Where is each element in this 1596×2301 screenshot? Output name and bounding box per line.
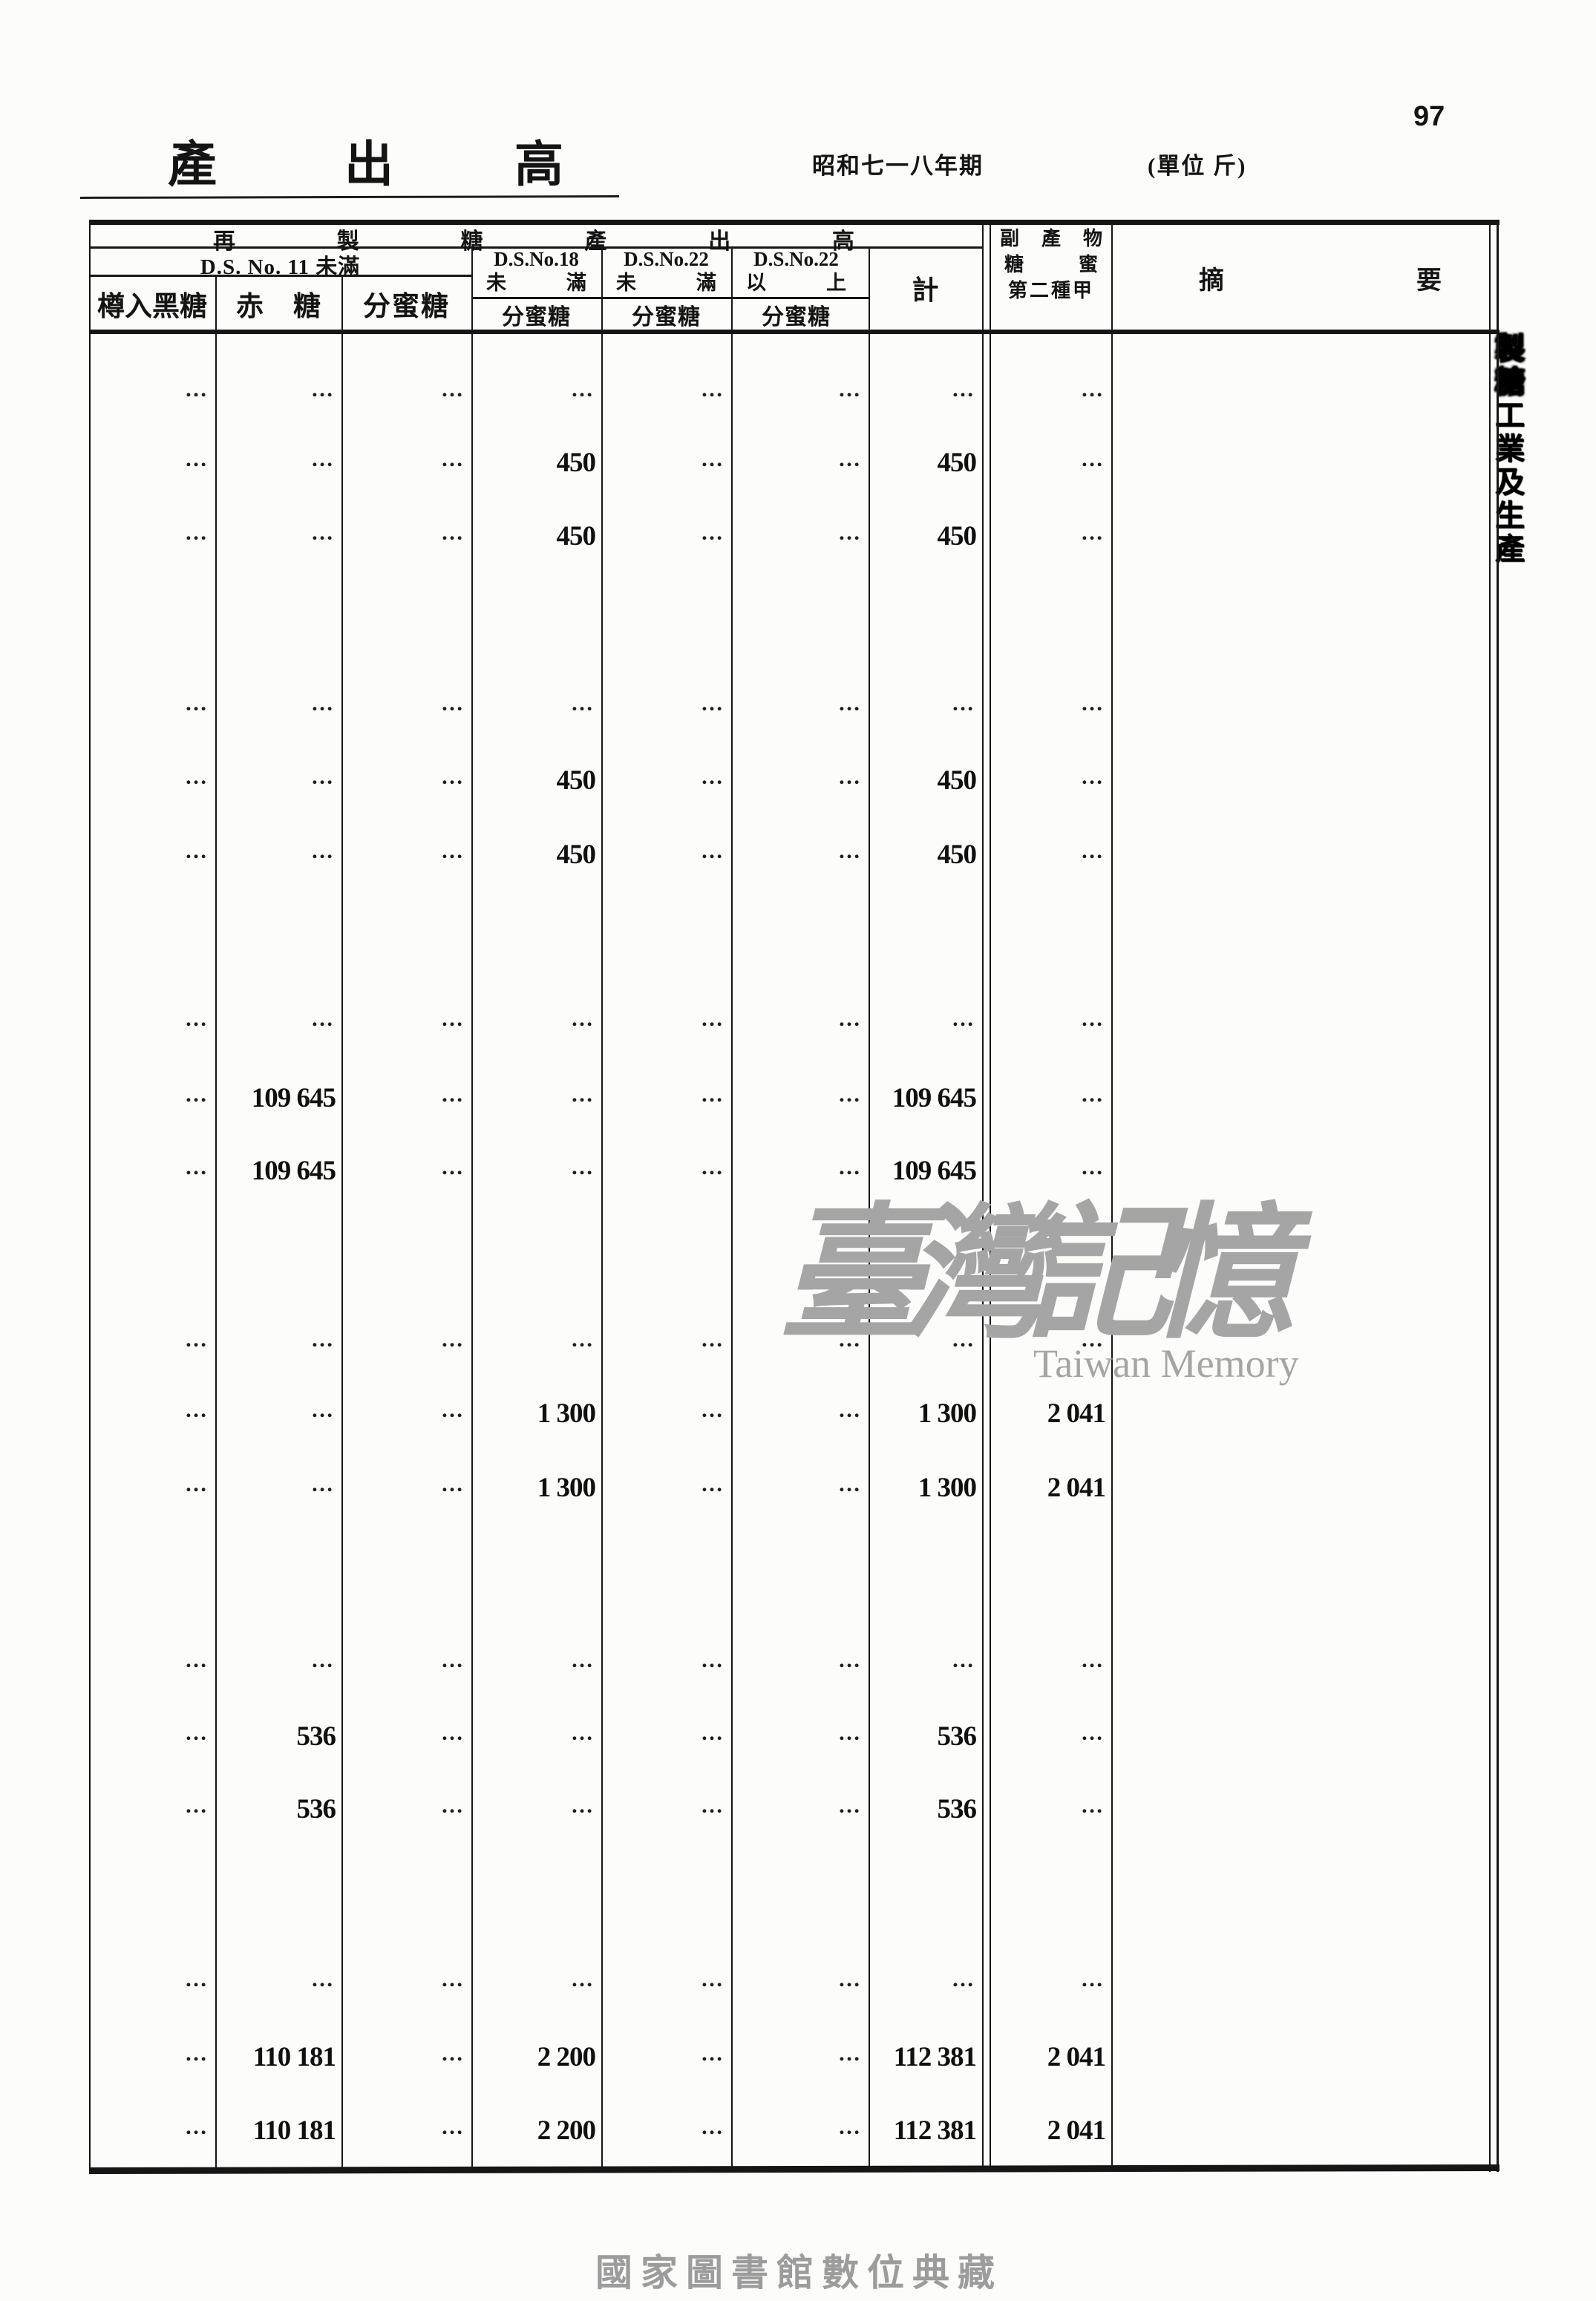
table-cell: … [592, 1398, 725, 1423]
table-bottom-border [89, 2164, 1499, 2174]
title-underline [80, 195, 619, 199]
table-cell: … [76, 2115, 209, 2140]
table-cell: … [76, 1721, 209, 1746]
table-cell: 110 181 [202, 2041, 336, 2073]
col-header-taruiri-kokuto: 樽入黑糖 [91, 284, 214, 324]
table-cell: … [972, 1007, 1105, 1032]
table-cell: … [76, 839, 209, 864]
table-cell: … [332, 1793, 465, 1819]
byproduct-line3: 第二種甲 [992, 278, 1110, 304]
table-cell: … [332, 765, 465, 790]
table-cell: … [76, 1007, 209, 1032]
table-cell: … [332, 1327, 465, 1352]
table-cell: … [202, 1327, 336, 1352]
table-cell: … [592, 691, 725, 716]
table-cell: … [592, 1721, 725, 1746]
period-label: 昭和七一八年期 [812, 147, 984, 180]
table-cell: 1 300 [843, 1472, 976, 1504]
table-cell: … [332, 447, 465, 472]
table-cell: … [972, 1793, 1105, 1819]
table-cell: … [843, 1007, 976, 1032]
table-cell: … [462, 1082, 595, 1107]
table-cell: … [592, 1472, 725, 1497]
table-cell: … [332, 377, 465, 402]
table-cell: … [202, 691, 336, 716]
table-cell: … [592, 1155, 725, 1180]
table-cell: … [332, 1007, 465, 1032]
col-header-bunmitsuto-ds22u: 分蜜糖 [603, 298, 730, 331]
table-cell: … [972, 447, 1105, 472]
table-cell: 109 645 [843, 1155, 976, 1187]
table-left-border [89, 220, 91, 2172]
table-cell: … [972, 1155, 1105, 1180]
table-cell: 1 300 [843, 1398, 976, 1430]
table-cell: 109 645 [202, 1082, 336, 1114]
table-cell: 450 [843, 447, 976, 479]
table-cell: … [462, 377, 595, 402]
page-title-char: 高 [514, 125, 563, 196]
table-cell: … [462, 691, 595, 716]
table-cell: … [843, 1967, 976, 1992]
ds22-over-label: D.S.No.22 [733, 248, 860, 271]
table-right-border [1497, 220, 1499, 2172]
table-cell: … [332, 2041, 465, 2066]
table-cell: … [972, 1327, 1105, 1352]
table-cell: … [592, 520, 725, 546]
table-cell: … [843, 1327, 976, 1352]
table-cell: 2 200 [462, 2041, 595, 2073]
table-cell: … [972, 765, 1105, 790]
table-cell: 109 645 [202, 1155, 336, 1187]
table-cell: … [972, 377, 1105, 402]
table-cell: … [462, 1967, 595, 1992]
table-cell: … [332, 691, 465, 716]
table-cell: … [592, 839, 725, 864]
table-cell: … [76, 2041, 209, 2066]
table-cell: 450 [843, 765, 976, 796]
ds22-under-label: D.S.No.22 [603, 248, 730, 271]
table-cell: … [332, 839, 465, 864]
table-cell: … [332, 1398, 465, 1423]
col-divider [341, 275, 343, 2172]
table-cell: 536 [843, 1721, 976, 1752]
table-cell: … [202, 1967, 336, 1992]
table-cell: … [76, 1648, 209, 1673]
table-cell: … [592, 1082, 725, 1107]
table-cell: 2 200 [462, 2115, 595, 2147]
col-header-remark: 摘 要 [1113, 260, 1488, 296]
table-cell: … [332, 1967, 465, 1992]
table-cell: … [332, 1721, 465, 1746]
table-cell: 112 381 [843, 2041, 976, 2073]
table-cell: … [202, 1472, 336, 1497]
table-cell: … [592, 765, 725, 790]
table-cell: … [202, 839, 336, 864]
table-cell: … [972, 520, 1105, 546]
table-cell: … [592, 1648, 725, 1673]
col-header-bunmitsuto-ds18: 分蜜糖 [473, 298, 600, 331]
table-cell: … [462, 1648, 595, 1673]
table-cell: … [972, 839, 1105, 864]
page-number: 97 [1413, 101, 1445, 133]
table-cell: 450 [462, 765, 595, 796]
table-cell: 450 [843, 839, 976, 871]
table-cell: 110 181 [202, 2115, 336, 2147]
table-cell: … [76, 1793, 209, 1819]
table-cell: … [76, 1155, 209, 1180]
table-cell: … [332, 2115, 465, 2140]
table-cell: … [202, 1007, 336, 1032]
table-cell: 2 041 [972, 2041, 1105, 2073]
table-cell: … [332, 520, 465, 546]
table-cell: … [592, 1793, 725, 1819]
col-group-ds18: D.S.No.18 未 滿 [473, 248, 600, 295]
table-cell: 450 [462, 839, 595, 871]
table-cell: … [76, 691, 209, 716]
table-cell: 536 [202, 1721, 336, 1752]
table-cell: 536 [202, 1793, 336, 1825]
table-cell: … [76, 447, 209, 472]
table-cell: … [462, 1793, 595, 1819]
col-group-ds22-over: D.S.No.22 以 上 [733, 248, 860, 295]
table-cell: … [592, 1967, 725, 1992]
table-cell: … [332, 1472, 465, 1497]
table-cell: … [592, 1007, 725, 1032]
table-cell: … [202, 1398, 336, 1423]
table-cell: … [202, 520, 336, 546]
col-header-sekito: 赤 糖 [217, 284, 340, 324]
table-cell: … [202, 765, 336, 790]
table-cell: 2 041 [972, 2115, 1105, 2147]
byproduct-line1: 副 產 物 [992, 226, 1110, 252]
table-cell: … [592, 2115, 725, 2140]
ds18-label: D.S.No.18 [473, 248, 600, 271]
page-title-char: 出 [344, 125, 393, 196]
table-cell: 450 [843, 520, 976, 552]
table-cell: 450 [462, 447, 595, 479]
table-cell: 536 [843, 1793, 976, 1825]
table-cell: … [972, 1648, 1105, 1673]
table-cell: … [972, 1082, 1105, 1107]
col-header-bunmitsuto-ds22o: 分蜜糖 [733, 298, 860, 331]
table-cell: … [76, 377, 209, 402]
table-cell: … [843, 377, 976, 402]
table-cell: … [76, 1472, 209, 1497]
col-group-ds22-under: D.S.No.22 未 滿 [603, 248, 730, 295]
table-cell: 450 [462, 520, 595, 552]
table-cell: … [972, 1967, 1105, 1992]
table-cell: … [843, 1648, 976, 1673]
table-cell: … [332, 1648, 465, 1673]
table-cell: … [332, 1155, 465, 1180]
table-cell: … [462, 1327, 595, 1352]
table-cell: … [843, 691, 976, 716]
archive-footer: 國家圖書館數位典藏 [595, 2243, 1003, 2297]
table-cell: … [592, 377, 725, 402]
ds18-sublabel: 未 滿 [473, 271, 600, 295]
table-cell: … [592, 1327, 725, 1352]
table-cell: … [332, 1082, 465, 1107]
byproduct-line2: 糖 蜜 [992, 252, 1110, 278]
table-cell: … [76, 1327, 209, 1352]
table-cell: … [972, 1721, 1105, 1746]
table-cell: … [462, 1721, 595, 1746]
col-header-byproduct: 副 產 物 糖 蜜 第二種甲 [992, 226, 1110, 304]
table-cell: 1 300 [462, 1398, 595, 1430]
table-cell: … [76, 1967, 209, 1992]
scanned-document-page: 產 出 高 昭和七一八年期 (單位 斤) 97 製糖工業及生產 再 製 [0, 0, 1596, 2301]
table-cell: … [202, 447, 336, 472]
table-cell: … [972, 691, 1105, 716]
col-header-total: 計 [870, 269, 981, 307]
table-cell: … [76, 1082, 209, 1107]
table-right-border-double [1489, 220, 1491, 2172]
ds22-over-sublabel: 以 上 [733, 271, 860, 295]
table-cell: 112 381 [843, 2115, 976, 2147]
table-cell: … [202, 377, 336, 402]
page-title-char: 產 [168, 125, 217, 196]
table-cell: 2 041 [972, 1398, 1105, 1430]
col-header-bunmitsuto: 分蜜糖 [343, 284, 470, 324]
col-group-ds11: D.S. No. 11 未滿 [89, 249, 471, 281]
table-cell: … [76, 765, 209, 790]
table-cell: … [592, 2041, 725, 2066]
table-cell: … [202, 1648, 336, 1673]
col-divider [215, 275, 217, 2172]
table-cell: … [462, 1155, 595, 1180]
table-cell: 1 300 [462, 1472, 595, 1504]
table-cell: … [76, 520, 209, 546]
table-cell: 109 645 [843, 1082, 976, 1114]
table-cell: 2 041 [972, 1472, 1105, 1504]
ds22-under-sublabel: 未 滿 [603, 271, 730, 295]
table-cell: … [592, 447, 725, 472]
unit-label: (單位 斤) [1148, 147, 1246, 180]
table-cell: … [76, 1398, 209, 1423]
table-cell: … [462, 1007, 595, 1032]
